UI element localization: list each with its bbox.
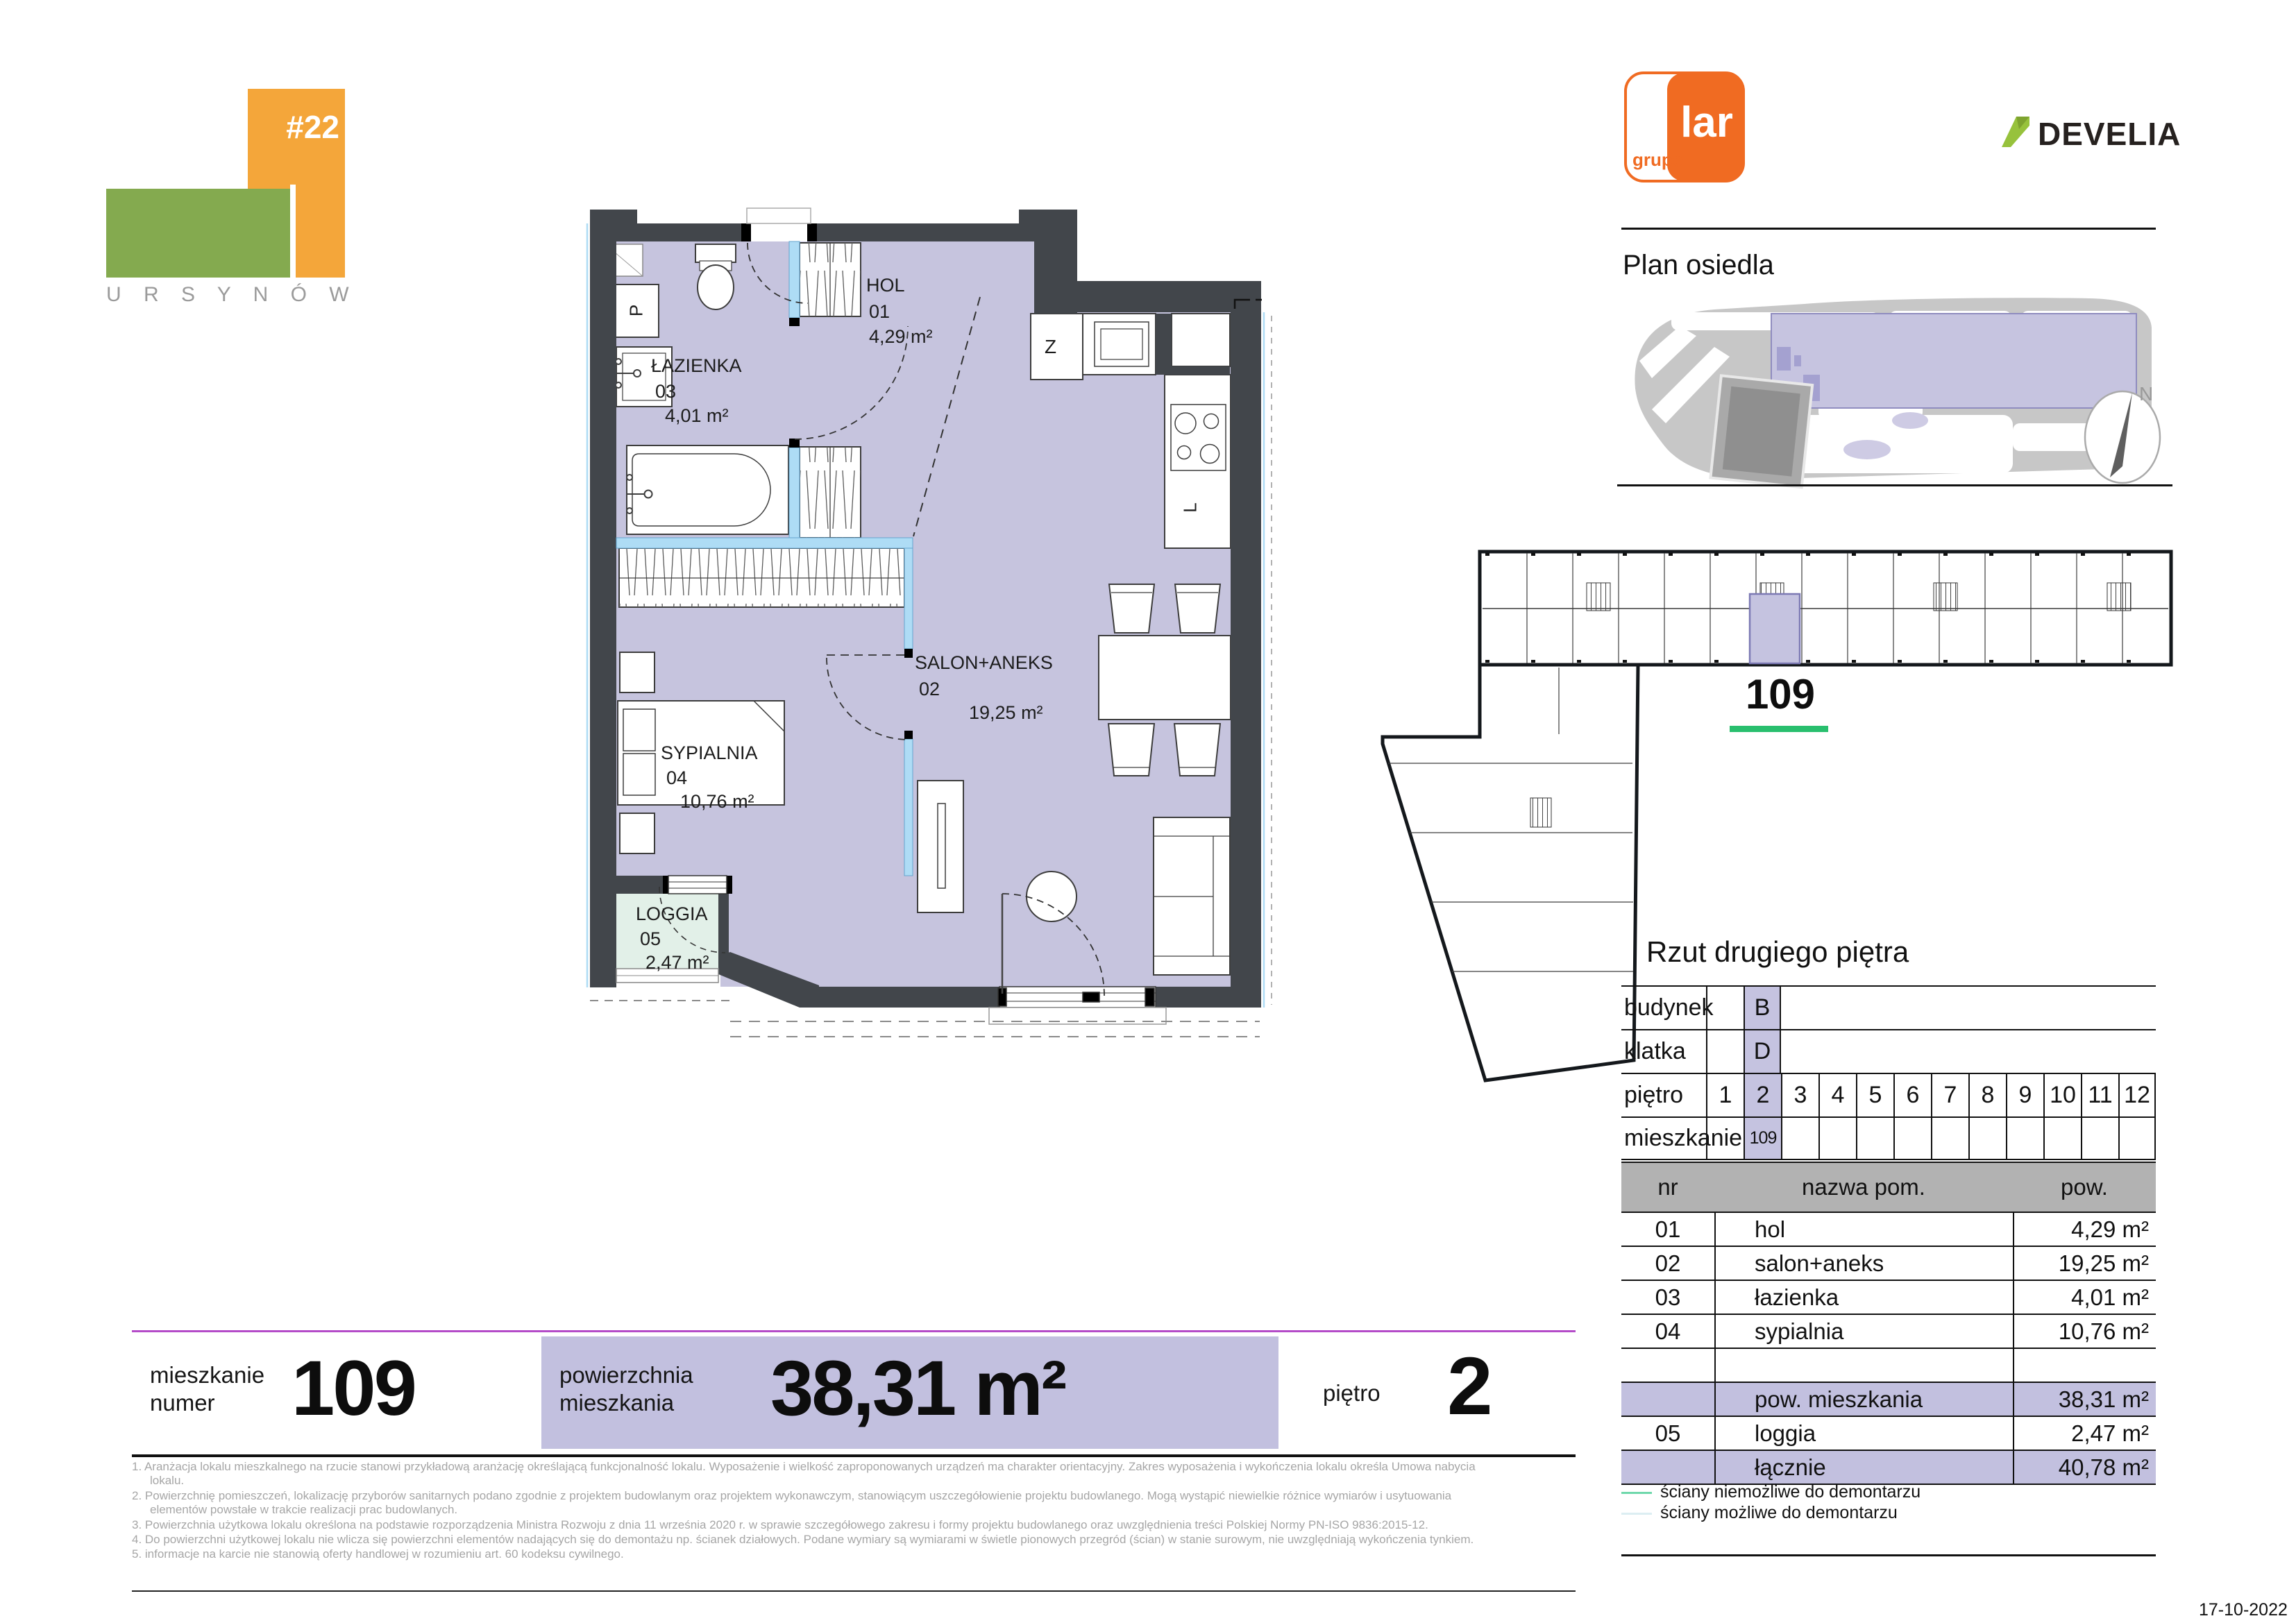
legend-label-solid: ściany niemożliwe do demontarzu <box>1660 1482 1921 1502</box>
bedroom-wardrobe-icon <box>619 548 904 607</box>
footnote-2: 2. Powierzchnię pomieszczeń, lokalizację… <box>132 1489 1506 1518</box>
logo-district: U R S Y N Ó W <box>106 283 356 307</box>
toilet-icon <box>695 244 736 309</box>
overview-unit-underline <box>1730 726 1828 732</box>
floor-cell-11: 11 <box>2081 1074 2118 1116</box>
header-pow: pow. <box>2013 1174 2156 1200</box>
row-area: 38,31 m² <box>2013 1383 2156 1416</box>
mieszkanie-empty-8 <box>2006 1118 2043 1159</box>
room-area-hol: 4,29 m² <box>869 326 933 348</box>
site-plan-title: Plan osiedla <box>1623 250 1774 281</box>
rooms-row-empty <box>1621 1349 2156 1383</box>
budynek-empty-cell <box>1706 987 1744 1029</box>
grupolar-lar-text: lar <box>1675 98 1738 147</box>
rooms-row-01: 01 hol 4,29 m² <box>1621 1213 2156 1247</box>
develia-icon <box>1998 115 2031 148</box>
row-name <box>1714 1349 2013 1382</box>
map-gray-building <box>1710 375 1812 487</box>
klatka-value: D <box>1744 1030 1781 1073</box>
oven-icon <box>1083 314 1156 375</box>
mieszkanie-empty-9 <box>2043 1118 2081 1159</box>
row-area: 19,25 m² <box>2013 1247 2156 1280</box>
footnote-4: 4. Do powierzchni użytkowej lokalu nie w… <box>132 1533 1506 1547</box>
floor-cell-10: 10 <box>2043 1074 2081 1116</box>
mieszkanie-empty-1 <box>1706 1118 1744 1159</box>
floor-cell-5: 5 <box>1856 1074 1893 1116</box>
budynek-value: B <box>1744 987 1781 1029</box>
unit-table-row-mieszkanie: mieszkanie 109 <box>1621 1116 2156 1160</box>
floor-cell-3: 3 <box>1781 1074 1818 1116</box>
overview-wing-stairs <box>1530 798 1551 827</box>
room-num-lazienka: 03 <box>655 381 676 402</box>
row-area <box>2013 1349 2156 1382</box>
room-label-hol: HOL <box>866 275 905 296</box>
rooms-row-03: 03 łazienka 4,01 m² <box>1621 1281 2156 1315</box>
room-label-lazienka: ŁAZIENKA <box>651 355 742 377</box>
map-building-bar <box>1771 314 2136 408</box>
project-logo: #22 U R S Y N Ó W <box>0 0 416 319</box>
legend-label-removable: ściany możliwe do demontarzu <box>1660 1503 1898 1523</box>
bathtub-icon <box>627 445 788 534</box>
nightstand-icon <box>620 813 655 853</box>
footnote-3: 3. Powierzchnia użytkowa lokalu określon… <box>132 1518 1506 1532</box>
row-name: salon+aneks <box>1714 1247 2013 1280</box>
overview-wing <box>1383 665 1638 1080</box>
header-nr: nr <box>1621 1174 1714 1200</box>
legend-swatch-removable <box>1621 1513 1652 1515</box>
unit-table-row-budynek: budynek B <box>1621 985 2156 1029</box>
row-name: łazienka <box>1714 1281 2013 1314</box>
mieszkanie-empty-10 <box>2081 1118 2118 1159</box>
klatka-label: klatka <box>1621 1030 1706 1073</box>
develia-text: DEVELIA <box>2038 115 2181 153</box>
footnote-5: 5. informacje na karcie nie stanowią ofe… <box>132 1547 1506 1561</box>
logo-green-block <box>106 189 290 278</box>
row-nr: 02 <box>1621 1247 1714 1280</box>
compass-n-label: N <box>2139 383 2153 405</box>
footnotes-underline <box>132 1590 1576 1592</box>
summary-area-label: powierzchnia mieszkania <box>559 1361 693 1417</box>
summary-bottom-line <box>132 1454 1576 1457</box>
room-label-loggia: LOGGIA <box>636 903 708 925</box>
rooms-row-05: 05 loggia 2,47 m² <box>1621 1417 2156 1451</box>
stove-icon <box>1171 405 1226 470</box>
summary-floor-value: 2 <box>1447 1339 1491 1434</box>
date-label: 17-10-2022 <box>2199 1600 2288 1620</box>
unit-table-row-klatka: klatka D <box>1621 1029 2156 1073</box>
grupolar-grupo-text: grupo <box>1632 149 1684 171</box>
klatka-empty-cell <box>1706 1030 1744 1073</box>
divider-bottom-right <box>1621 1554 2156 1556</box>
logo-number: #22 <box>248 108 339 146</box>
row-area: 2,47 m² <box>2013 1417 2156 1450</box>
coffee-table-icon <box>1027 872 1077 921</box>
sofa-icon <box>1154 817 1230 975</box>
washer-letter: P <box>626 291 648 330</box>
row-name: loggia <box>1714 1417 2013 1450</box>
tv-console-icon <box>918 781 963 912</box>
row-nr: 01 <box>1621 1213 1714 1246</box>
room-num-loggia: 05 <box>640 928 661 950</box>
floor-cell-1: 1 <box>1706 1074 1744 1116</box>
row-nr: 03 <box>1621 1281 1714 1314</box>
row-area: 10,76 m² <box>2013 1315 2156 1348</box>
row-name: sypialnia <box>1714 1315 2013 1348</box>
unit-table-row-pietro: piętro 1 2 3 4 5 6 7 8 9 10 11 12 <box>1621 1073 2156 1116</box>
room-label-sypialnia: SYPIALNIA <box>661 742 758 764</box>
closet-z-icon <box>1031 314 1083 380</box>
row-nr <box>1621 1383 1714 1416</box>
mieszkanie-empty-5 <box>1893 1118 1931 1159</box>
legend: ściany niemożliwe do demontarzu ściany m… <box>1621 1478 2163 1533</box>
footnotes: 1. Aranżacja lokalu mieszkalnego na rzuc… <box>132 1460 1506 1563</box>
closet-letter: Z <box>1045 336 1056 358</box>
row-name: pow. mieszkania <box>1714 1383 2013 1416</box>
budynek-label: budynek <box>1621 987 1706 1029</box>
row-nr: 05 <box>1621 1417 1714 1450</box>
mieszkanie-label: mieszkanie <box>1621 1118 1706 1159</box>
floor-cell-9: 9 <box>2006 1074 2043 1116</box>
summary-floor-label: piętro <box>1323 1379 1381 1407</box>
rooms-row-02: 02 salon+aneks 19,25 m² <box>1621 1247 2156 1281</box>
summary-magenta-line <box>132 1330 1576 1332</box>
header-nazwa: nazwa pom. <box>1714 1174 2013 1200</box>
site-plan-map <box>1617 291 2166 493</box>
room-num-salon: 02 <box>919 679 940 700</box>
divider-under-brands <box>1621 228 2156 230</box>
row-nr <box>1621 1349 1714 1382</box>
divider-under-map <box>1617 484 2172 486</box>
rooms-row-04: 04 sypialnia 10,76 m² <box>1621 1315 2156 1349</box>
pietro-label: piętro <box>1621 1074 1706 1116</box>
summary-area-value: 38,31 m² <box>770 1343 1065 1433</box>
legend-swatch-solid <box>1621 1492 1652 1494</box>
mieszkanie-value: 109 <box>1744 1118 1781 1159</box>
mieszkanie-empty-2 <box>1781 1118 1818 1159</box>
row-name: hol <box>1714 1213 2013 1246</box>
mieszkanie-empty-3 <box>1818 1118 1856 1159</box>
summary-unit-value: 109 <box>292 1343 415 1433</box>
mieszkanie-empty-6 <box>1931 1118 1968 1159</box>
summary-unit-label: mieszkanie numer <box>150 1361 264 1417</box>
floor-cell-2-selected: 2 <box>1744 1074 1781 1116</box>
room-num-sypialnia: 04 <box>666 767 687 789</box>
room-area-lazienka: 4,01 m² <box>665 405 729 427</box>
room-area-sypialnia: 10,76 m² <box>680 791 754 813</box>
develia-logo: DEVELIA <box>1998 110 2164 154</box>
fridge-letter: L <box>1180 487 1201 529</box>
row-area: 4,29 m² <box>2013 1213 2156 1246</box>
nightstand-icon <box>620 652 655 692</box>
mieszkanie-empty-11 <box>2118 1118 2156 1159</box>
apartment-floorplan <box>583 201 1284 1055</box>
rooms-row-total-area: pow. mieszkania 38,31 m² <box>1621 1383 2156 1417</box>
mieszkanie-empty-4 <box>1856 1118 1893 1159</box>
floor-cell-12: 12 <box>2118 1074 2156 1116</box>
logo-gap <box>290 185 296 282</box>
room-num-hol: 01 <box>869 301 890 323</box>
overview-unit-number: 109 <box>1728 670 1832 718</box>
fridge-icon <box>1172 314 1230 366</box>
floor-cell-6: 6 <box>1893 1074 1931 1116</box>
row-nr: 04 <box>1621 1315 1714 1348</box>
floor-section-title: Rzut drugiego piętra <box>1646 935 1909 969</box>
floor-cell-8: 8 <box>1968 1074 2006 1116</box>
floor-cell-4: 4 <box>1818 1074 1856 1116</box>
row-area: 4,01 m² <box>2013 1281 2156 1314</box>
footnote-1: 1. Aranżacja lokalu mieszkalnego na rzuc… <box>132 1460 1506 1488</box>
grupolar-logo: lar grupo <box>1624 71 1745 182</box>
floor-cell-7: 7 <box>1931 1074 1968 1116</box>
room-label-salon: SALON+ANEKS <box>915 652 1053 674</box>
apartment-card-page: { "project_logo": { "number": "#22", "di… <box>0 0 2296 1623</box>
mieszkanie-empty-7 <box>1968 1118 2006 1159</box>
overview-highlighted-unit <box>1750 594 1800 663</box>
room-area-salon: 19,25 m² <box>969 702 1043 724</box>
rooms-table-header: nr nazwa pom. pow. <box>1621 1162 2156 1213</box>
entrance-recess <box>747 208 811 223</box>
room-area-loggia: 2,47 m² <box>645 952 709 974</box>
